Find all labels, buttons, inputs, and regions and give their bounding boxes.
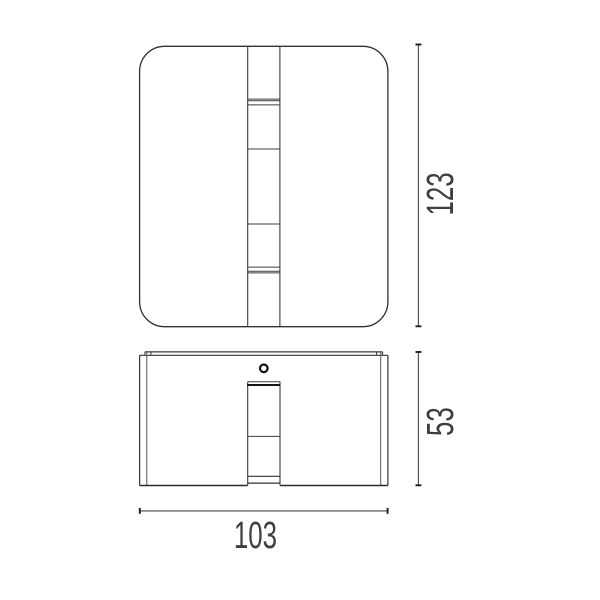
svg-text:103: 103 xyxy=(234,514,277,556)
svg-text:123: 123 xyxy=(419,172,461,215)
svg-text:53: 53 xyxy=(419,407,461,436)
